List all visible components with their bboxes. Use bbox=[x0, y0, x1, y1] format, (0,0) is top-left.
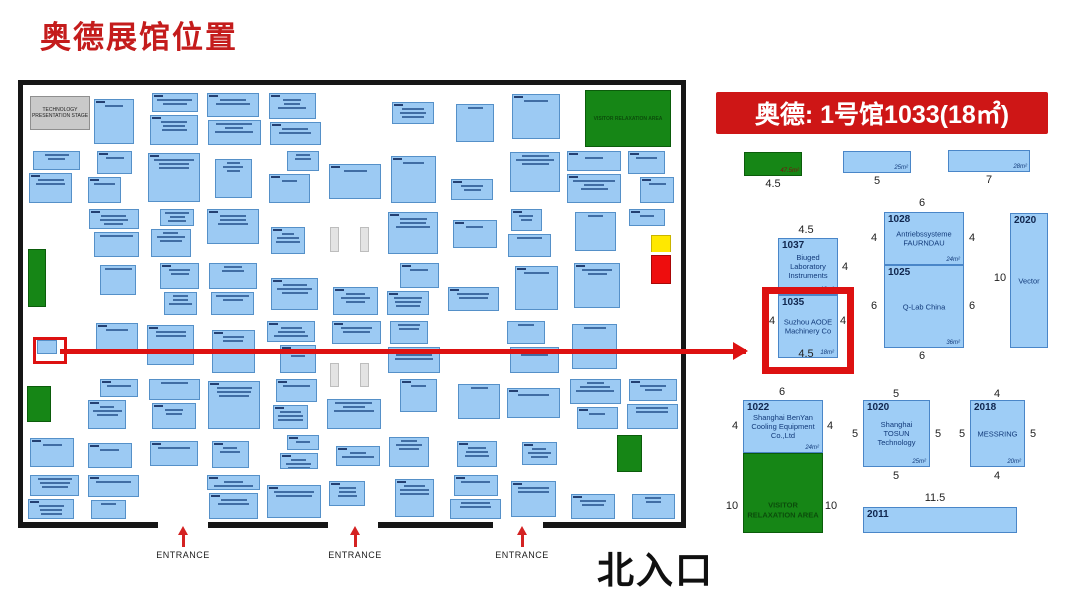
booth-text-line bbox=[646, 501, 661, 503]
booth-text-line bbox=[296, 154, 310, 156]
booth-text-line bbox=[277, 237, 300, 239]
detail-booth-1020: 1020Shanghai TOSUN Technology25m² bbox=[863, 400, 930, 467]
entrance-arrow-icon bbox=[517, 526, 527, 535]
booth-id-mark bbox=[149, 327, 158, 329]
dimension-label: 4.5 bbox=[798, 224, 813, 236]
booth-text-line bbox=[341, 327, 372, 329]
booth-text-line bbox=[399, 448, 418, 450]
booth-text-line bbox=[465, 455, 489, 457]
booth-id-mark bbox=[509, 390, 518, 392]
booth-text-line bbox=[104, 223, 123, 225]
booth-id-mark bbox=[90, 445, 99, 447]
booth-text-line bbox=[457, 293, 489, 295]
booth-id: 1028 bbox=[888, 214, 910, 225]
dimension-label: 4 bbox=[732, 420, 738, 432]
entrance-arrow-icon bbox=[350, 526, 360, 535]
booth-text-line bbox=[224, 481, 242, 483]
booth-text-line bbox=[573, 180, 614, 182]
booth-text-line bbox=[223, 336, 244, 338]
green-area-mid-right bbox=[617, 435, 642, 472]
size-bar: 25m² bbox=[843, 151, 911, 173]
map-booth bbox=[269, 93, 316, 119]
floorplan-map: TECHNOLOGY PRESENTATION STAGEVISITOR REL… bbox=[18, 80, 686, 528]
booth-text-line bbox=[276, 241, 299, 243]
booth-text-line bbox=[157, 236, 185, 238]
booth-text-line bbox=[220, 215, 246, 217]
map-booth bbox=[88, 443, 132, 468]
booth-text-line bbox=[342, 456, 374, 458]
booth-id-mark bbox=[275, 407, 284, 409]
booth-id-mark bbox=[154, 95, 163, 97]
booth-text-line bbox=[173, 295, 187, 297]
booth-text-line bbox=[227, 162, 239, 164]
booth-name: MESSRING bbox=[971, 429, 1024, 438]
booth-text-line bbox=[291, 459, 306, 461]
map-booth bbox=[632, 494, 675, 519]
lead-arrow bbox=[60, 349, 746, 354]
booth-id-mark bbox=[450, 289, 459, 291]
dimension-label: 4 bbox=[842, 261, 848, 273]
booth-text-line bbox=[39, 505, 64, 507]
booth-text-line bbox=[217, 391, 251, 393]
map-booth bbox=[160, 263, 199, 289]
dimension-label: 7 bbox=[986, 174, 992, 186]
map-booth bbox=[152, 403, 196, 429]
booth-text-line bbox=[335, 402, 372, 404]
booth-text-line bbox=[220, 219, 246, 221]
map-booth bbox=[29, 173, 72, 203]
map-booth bbox=[400, 263, 440, 288]
map-booth bbox=[270, 122, 321, 145]
booth-text-line bbox=[165, 212, 189, 214]
booth-area-label: 24m² bbox=[946, 257, 960, 263]
booth-id-mark bbox=[162, 265, 171, 267]
entrance-marker: ENTRANCE bbox=[143, 526, 223, 560]
dimension-label: 5 bbox=[852, 428, 858, 440]
booth-text-line bbox=[163, 125, 185, 127]
booth-text-line bbox=[162, 129, 187, 131]
booth-text-line bbox=[100, 406, 114, 408]
booth-id-mark bbox=[455, 222, 464, 224]
map-bottom-border bbox=[208, 522, 328, 528]
booth-id: 2018 bbox=[974, 402, 996, 413]
booth-name: Biuged Laboratory Instruments bbox=[779, 252, 837, 280]
booth-text-line bbox=[396, 444, 421, 446]
map-booth bbox=[629, 209, 665, 226]
booth-id-mark bbox=[214, 332, 223, 334]
dimension-label: 4 bbox=[969, 232, 975, 244]
booth-text-line bbox=[218, 503, 249, 505]
booth-id-mark bbox=[90, 402, 99, 404]
booth-text-line bbox=[101, 215, 125, 217]
size-bar-area-label: 47.5m² bbox=[780, 168, 799, 174]
booth-text-line bbox=[518, 487, 549, 489]
pillar bbox=[360, 227, 369, 252]
map-booth bbox=[94, 99, 134, 145]
map-booth bbox=[391, 156, 436, 203]
visitor-relaxation-area: VISITOR RELAXATION AREA bbox=[585, 90, 671, 147]
booth-text-line bbox=[218, 223, 248, 225]
size-bar: 47.5m² bbox=[744, 152, 802, 176]
booth-id-mark bbox=[390, 214, 399, 216]
detail-highlight-box bbox=[762, 287, 854, 374]
booth-id-mark bbox=[631, 211, 640, 213]
map-booth bbox=[30, 438, 74, 466]
detail-booth: VISITOR RELAXATION AREA bbox=[743, 453, 823, 533]
booth-text-line bbox=[396, 354, 431, 356]
booth-text-line bbox=[400, 112, 425, 114]
booth-text-line bbox=[278, 107, 306, 109]
pillar bbox=[330, 363, 339, 387]
map-booth bbox=[392, 102, 434, 124]
booth-text-line bbox=[522, 163, 549, 165]
detail-booth-2018: 2018MESSRING20m² bbox=[970, 400, 1025, 467]
booth-text-line bbox=[589, 413, 605, 415]
booth-text-line bbox=[401, 440, 416, 442]
map-booth bbox=[458, 384, 500, 419]
map-booth bbox=[30, 475, 79, 496]
booth-text-line bbox=[227, 170, 240, 172]
booth-id-mark bbox=[273, 280, 282, 282]
booth-text-line bbox=[277, 288, 312, 290]
booth-id: 2020 bbox=[1014, 215, 1036, 226]
map-booth bbox=[574, 263, 620, 308]
booth-id-mark bbox=[453, 181, 462, 183]
map-booth bbox=[448, 287, 499, 311]
booth-id-mark bbox=[573, 496, 582, 498]
size-bar-area-label: 25m² bbox=[894, 165, 908, 171]
map-bottom-border bbox=[543, 522, 681, 528]
map-booth bbox=[287, 151, 319, 171]
booth-text-line bbox=[38, 179, 64, 181]
map-booth bbox=[522, 442, 556, 465]
dimension-label: 4 bbox=[769, 315, 775, 327]
dimension-label: 5 bbox=[893, 470, 899, 482]
detail-booth-1025: 1025Q-Lab China36m² bbox=[884, 265, 964, 348]
booth-text-line bbox=[169, 303, 192, 305]
map-booth bbox=[327, 399, 381, 429]
map-booth bbox=[629, 379, 677, 401]
booth-text-line bbox=[291, 355, 305, 357]
booth-text-line bbox=[217, 387, 252, 389]
booth-text-line bbox=[169, 269, 190, 271]
booth-text-line bbox=[346, 293, 365, 295]
booth-id-mark bbox=[209, 95, 218, 97]
map-booth bbox=[628, 151, 666, 174]
booth-text-line bbox=[216, 103, 249, 105]
booth-text-line bbox=[282, 233, 294, 235]
booth-text-line bbox=[576, 390, 614, 392]
booth-text-line bbox=[156, 335, 186, 337]
booth-text-line bbox=[528, 452, 551, 454]
booth-id-mark bbox=[289, 437, 298, 439]
map-booth bbox=[280, 453, 318, 469]
dimension-label: 10 bbox=[825, 500, 837, 512]
map-booth bbox=[515, 266, 557, 311]
booth-id-mark bbox=[154, 405, 163, 407]
booth-text-line bbox=[522, 155, 549, 157]
map-booth bbox=[567, 174, 621, 203]
booth-text-line bbox=[518, 394, 549, 396]
booth-text-line bbox=[220, 451, 240, 453]
booth-text-line bbox=[582, 269, 612, 271]
booth-text-line bbox=[97, 414, 118, 416]
booth-text-line bbox=[161, 121, 187, 123]
map-booth bbox=[148, 153, 200, 201]
map-booth bbox=[100, 379, 138, 397]
booth-text-line bbox=[45, 154, 69, 156]
booth-text-line bbox=[471, 387, 487, 389]
booth-id-mark bbox=[271, 176, 280, 178]
booth-text-line bbox=[161, 382, 188, 384]
map-booth bbox=[508, 234, 551, 257]
map-booth bbox=[400, 379, 437, 411]
booth-text-line bbox=[223, 447, 237, 449]
map-booth bbox=[269, 174, 310, 203]
booth-id: 2011 bbox=[867, 509, 889, 520]
booth-text-line bbox=[584, 184, 603, 186]
entrance-arrow-stem bbox=[354, 535, 357, 547]
booth-id-mark bbox=[152, 443, 161, 445]
booth-text-line bbox=[36, 183, 65, 185]
booth-id: 1020 bbox=[867, 402, 889, 413]
booth-name: Shanghai BenYan Cooling Equipment Co.,Lt… bbox=[744, 412, 822, 440]
booth-id-mark bbox=[269, 487, 278, 489]
booth-text-line bbox=[171, 273, 188, 275]
booth-name: Q-Lab China bbox=[885, 302, 963, 311]
map-booth bbox=[147, 325, 194, 365]
map-booth bbox=[575, 212, 616, 251]
map-booth bbox=[271, 227, 305, 254]
booth-area-label: 25m² bbox=[912, 459, 926, 465]
map-booth bbox=[390, 321, 428, 344]
booth-text-line bbox=[587, 382, 604, 384]
booth-id-mark bbox=[524, 444, 533, 446]
booth-text-line bbox=[274, 491, 315, 493]
booth-text-line bbox=[468, 447, 487, 449]
slide: 奥德展馆位置 TECHNOLOGY PRESENTATION STAGEVISI… bbox=[0, 0, 1080, 595]
booth-id-mark bbox=[569, 153, 578, 155]
booth-text-line bbox=[48, 158, 65, 160]
booth-text-line bbox=[636, 407, 668, 409]
map-booth bbox=[164, 292, 198, 315]
booth-text-line bbox=[521, 354, 549, 356]
booth-text-line bbox=[400, 222, 426, 224]
booth-text-line bbox=[225, 127, 244, 129]
map-booth bbox=[640, 177, 674, 203]
booth-text-line bbox=[399, 328, 419, 330]
booth-text-line bbox=[107, 385, 130, 387]
booth-id-mark bbox=[513, 483, 522, 485]
booth-id-mark bbox=[331, 483, 340, 485]
booth-id-mark bbox=[514, 96, 523, 98]
booth-id-mark bbox=[269, 323, 278, 325]
booth-id-mark bbox=[389, 293, 398, 295]
map-booth bbox=[209, 493, 258, 519]
entrance-label: ENTRANCE bbox=[143, 550, 223, 560]
map-booth bbox=[336, 446, 380, 466]
map-booth bbox=[207, 475, 259, 490]
booth-id-mark bbox=[278, 381, 287, 383]
map-booth bbox=[511, 209, 541, 231]
booth-text-line bbox=[346, 301, 365, 303]
booth-area-label: 20m² bbox=[1007, 459, 1021, 465]
booth-id-mark bbox=[456, 477, 465, 479]
booth-text-line bbox=[282, 128, 308, 130]
booth-id-mark bbox=[209, 477, 218, 479]
dimension-label: 10 bbox=[726, 500, 738, 512]
detail-banner: 奥德: 1号馆1033(18㎡) bbox=[716, 92, 1048, 134]
booth-text-line bbox=[221, 499, 247, 501]
booth-id-mark bbox=[209, 211, 218, 213]
map-booth bbox=[88, 400, 126, 429]
booth-text-line bbox=[222, 270, 244, 272]
booth-text-line bbox=[223, 340, 243, 342]
booth-text-line bbox=[156, 331, 186, 333]
booth-text-line bbox=[296, 441, 310, 443]
booth-text-line bbox=[343, 331, 371, 333]
booth-text-line bbox=[279, 132, 311, 134]
booth-text-line bbox=[398, 324, 420, 326]
dimension-label: 4.5 bbox=[765, 178, 780, 190]
map-booth bbox=[212, 441, 249, 469]
booth-text-line bbox=[276, 495, 311, 497]
lead-arrow-head-icon bbox=[733, 342, 748, 360]
booth-name: VISITOR RELAXATION AREA bbox=[744, 501, 822, 520]
dimension-label: 5 bbox=[874, 175, 880, 187]
detail-booth-2020: 2020Vector bbox=[1010, 213, 1048, 348]
booth-id: 1037 bbox=[782, 240, 804, 251]
map-booth bbox=[287, 435, 319, 450]
map-booth bbox=[570, 379, 621, 404]
booth-text-line bbox=[517, 237, 541, 239]
entrance-arrow-stem bbox=[521, 535, 524, 547]
map-booth bbox=[329, 164, 381, 199]
size-bar: 28m² bbox=[948, 150, 1030, 172]
booth-id-mark bbox=[30, 501, 39, 503]
booth-text-line bbox=[532, 448, 546, 450]
booth-text-line bbox=[394, 297, 422, 299]
booth-text-line bbox=[339, 487, 356, 489]
detail-booth-1028: 1028Antriebssysteme FAURNDAU24m² bbox=[884, 212, 964, 265]
booth-text-line bbox=[640, 215, 655, 217]
booth-id-mark bbox=[31, 175, 40, 177]
booth-id-mark bbox=[282, 455, 291, 457]
booth-id-mark bbox=[150, 155, 159, 157]
booth-text-line bbox=[459, 297, 488, 299]
booth-text-line bbox=[588, 215, 603, 217]
booth-text-line bbox=[216, 295, 249, 297]
booth-id-mark bbox=[90, 179, 99, 181]
technology-presentation-stage: TECHNOLOGY PRESENTATION STAGE bbox=[30, 96, 90, 130]
booth-id-mark bbox=[642, 179, 651, 181]
booth-id-mark bbox=[513, 211, 522, 213]
booth-id-mark bbox=[273, 229, 282, 231]
booth-text-line bbox=[280, 411, 300, 413]
booth-text-line bbox=[404, 485, 425, 487]
booth-text-line bbox=[105, 268, 132, 270]
booth-id-mark bbox=[394, 104, 403, 106]
dimension-label: 5 bbox=[893, 388, 899, 400]
booth-text-line bbox=[460, 506, 490, 508]
booth-text-line bbox=[170, 216, 185, 218]
booth-text-line bbox=[158, 447, 190, 449]
entrance-label: ENTRANCE bbox=[482, 550, 562, 560]
booth-text-line bbox=[223, 299, 243, 301]
map-booth bbox=[100, 265, 136, 295]
booth-text-line bbox=[640, 385, 666, 387]
dimension-label: 4 bbox=[994, 388, 1000, 400]
map-bottom-border bbox=[378, 522, 493, 528]
booth-text-line bbox=[278, 415, 304, 417]
booth-text-line bbox=[339, 491, 356, 493]
booth-text-line bbox=[395, 301, 420, 303]
booth-text-line bbox=[93, 410, 122, 412]
booth-text-line bbox=[281, 327, 302, 329]
map-booth bbox=[94, 232, 139, 257]
booth-text-line bbox=[283, 99, 301, 101]
booth-text-line bbox=[518, 324, 534, 326]
map-booth bbox=[388, 212, 438, 254]
booth-text-line bbox=[466, 451, 488, 453]
booth-text-line bbox=[283, 385, 310, 387]
booth-text-line bbox=[400, 493, 429, 495]
booth-text-line bbox=[580, 500, 606, 502]
dimension-label: 4 bbox=[994, 470, 1000, 482]
map-booth bbox=[456, 104, 494, 141]
booth-text-line bbox=[219, 395, 249, 397]
booth-id-mark bbox=[402, 265, 411, 267]
booth-id-mark bbox=[99, 153, 108, 155]
booth-text-line bbox=[278, 419, 302, 421]
booth-text-line bbox=[214, 485, 253, 487]
booth-id-mark bbox=[579, 409, 588, 411]
booth-text-line bbox=[100, 219, 128, 221]
booth-text-line bbox=[461, 185, 483, 187]
booth-text-line bbox=[645, 389, 662, 391]
dimension-label: 6 bbox=[919, 350, 925, 362]
booth-text-line bbox=[100, 235, 133, 237]
booth-text-line bbox=[215, 131, 252, 133]
map-booth bbox=[276, 379, 317, 402]
map-booth bbox=[211, 292, 254, 315]
booth-text-line bbox=[286, 463, 311, 465]
booth-id-mark bbox=[397, 481, 406, 483]
booth-text-line bbox=[288, 467, 310, 469]
booth-text-line bbox=[521, 219, 533, 221]
booth-id-mark bbox=[631, 381, 640, 383]
booth-text-line bbox=[40, 509, 62, 511]
map-booth bbox=[511, 481, 556, 517]
booth-id-mark bbox=[517, 268, 526, 270]
booth-text-line bbox=[581, 188, 608, 190]
map-booth bbox=[451, 179, 494, 200]
map-booth bbox=[387, 291, 428, 315]
dimension-label: 5 bbox=[959, 428, 965, 440]
booth-id-mark bbox=[91, 211, 100, 213]
booth-text-line bbox=[165, 409, 182, 411]
map-booth bbox=[273, 405, 308, 429]
dimension-label: 5 bbox=[935, 428, 941, 440]
map-booth bbox=[267, 321, 315, 342]
booth-id-mark bbox=[331, 166, 340, 168]
dimension-label: 4 bbox=[840, 315, 846, 327]
entrance-label: ENTRANCE bbox=[315, 550, 395, 560]
booth-name: Antriebssysteme FAURNDAU bbox=[885, 229, 963, 248]
booth-id-mark bbox=[152, 117, 161, 119]
map-booth bbox=[577, 407, 618, 429]
booth-text-line bbox=[163, 103, 187, 105]
